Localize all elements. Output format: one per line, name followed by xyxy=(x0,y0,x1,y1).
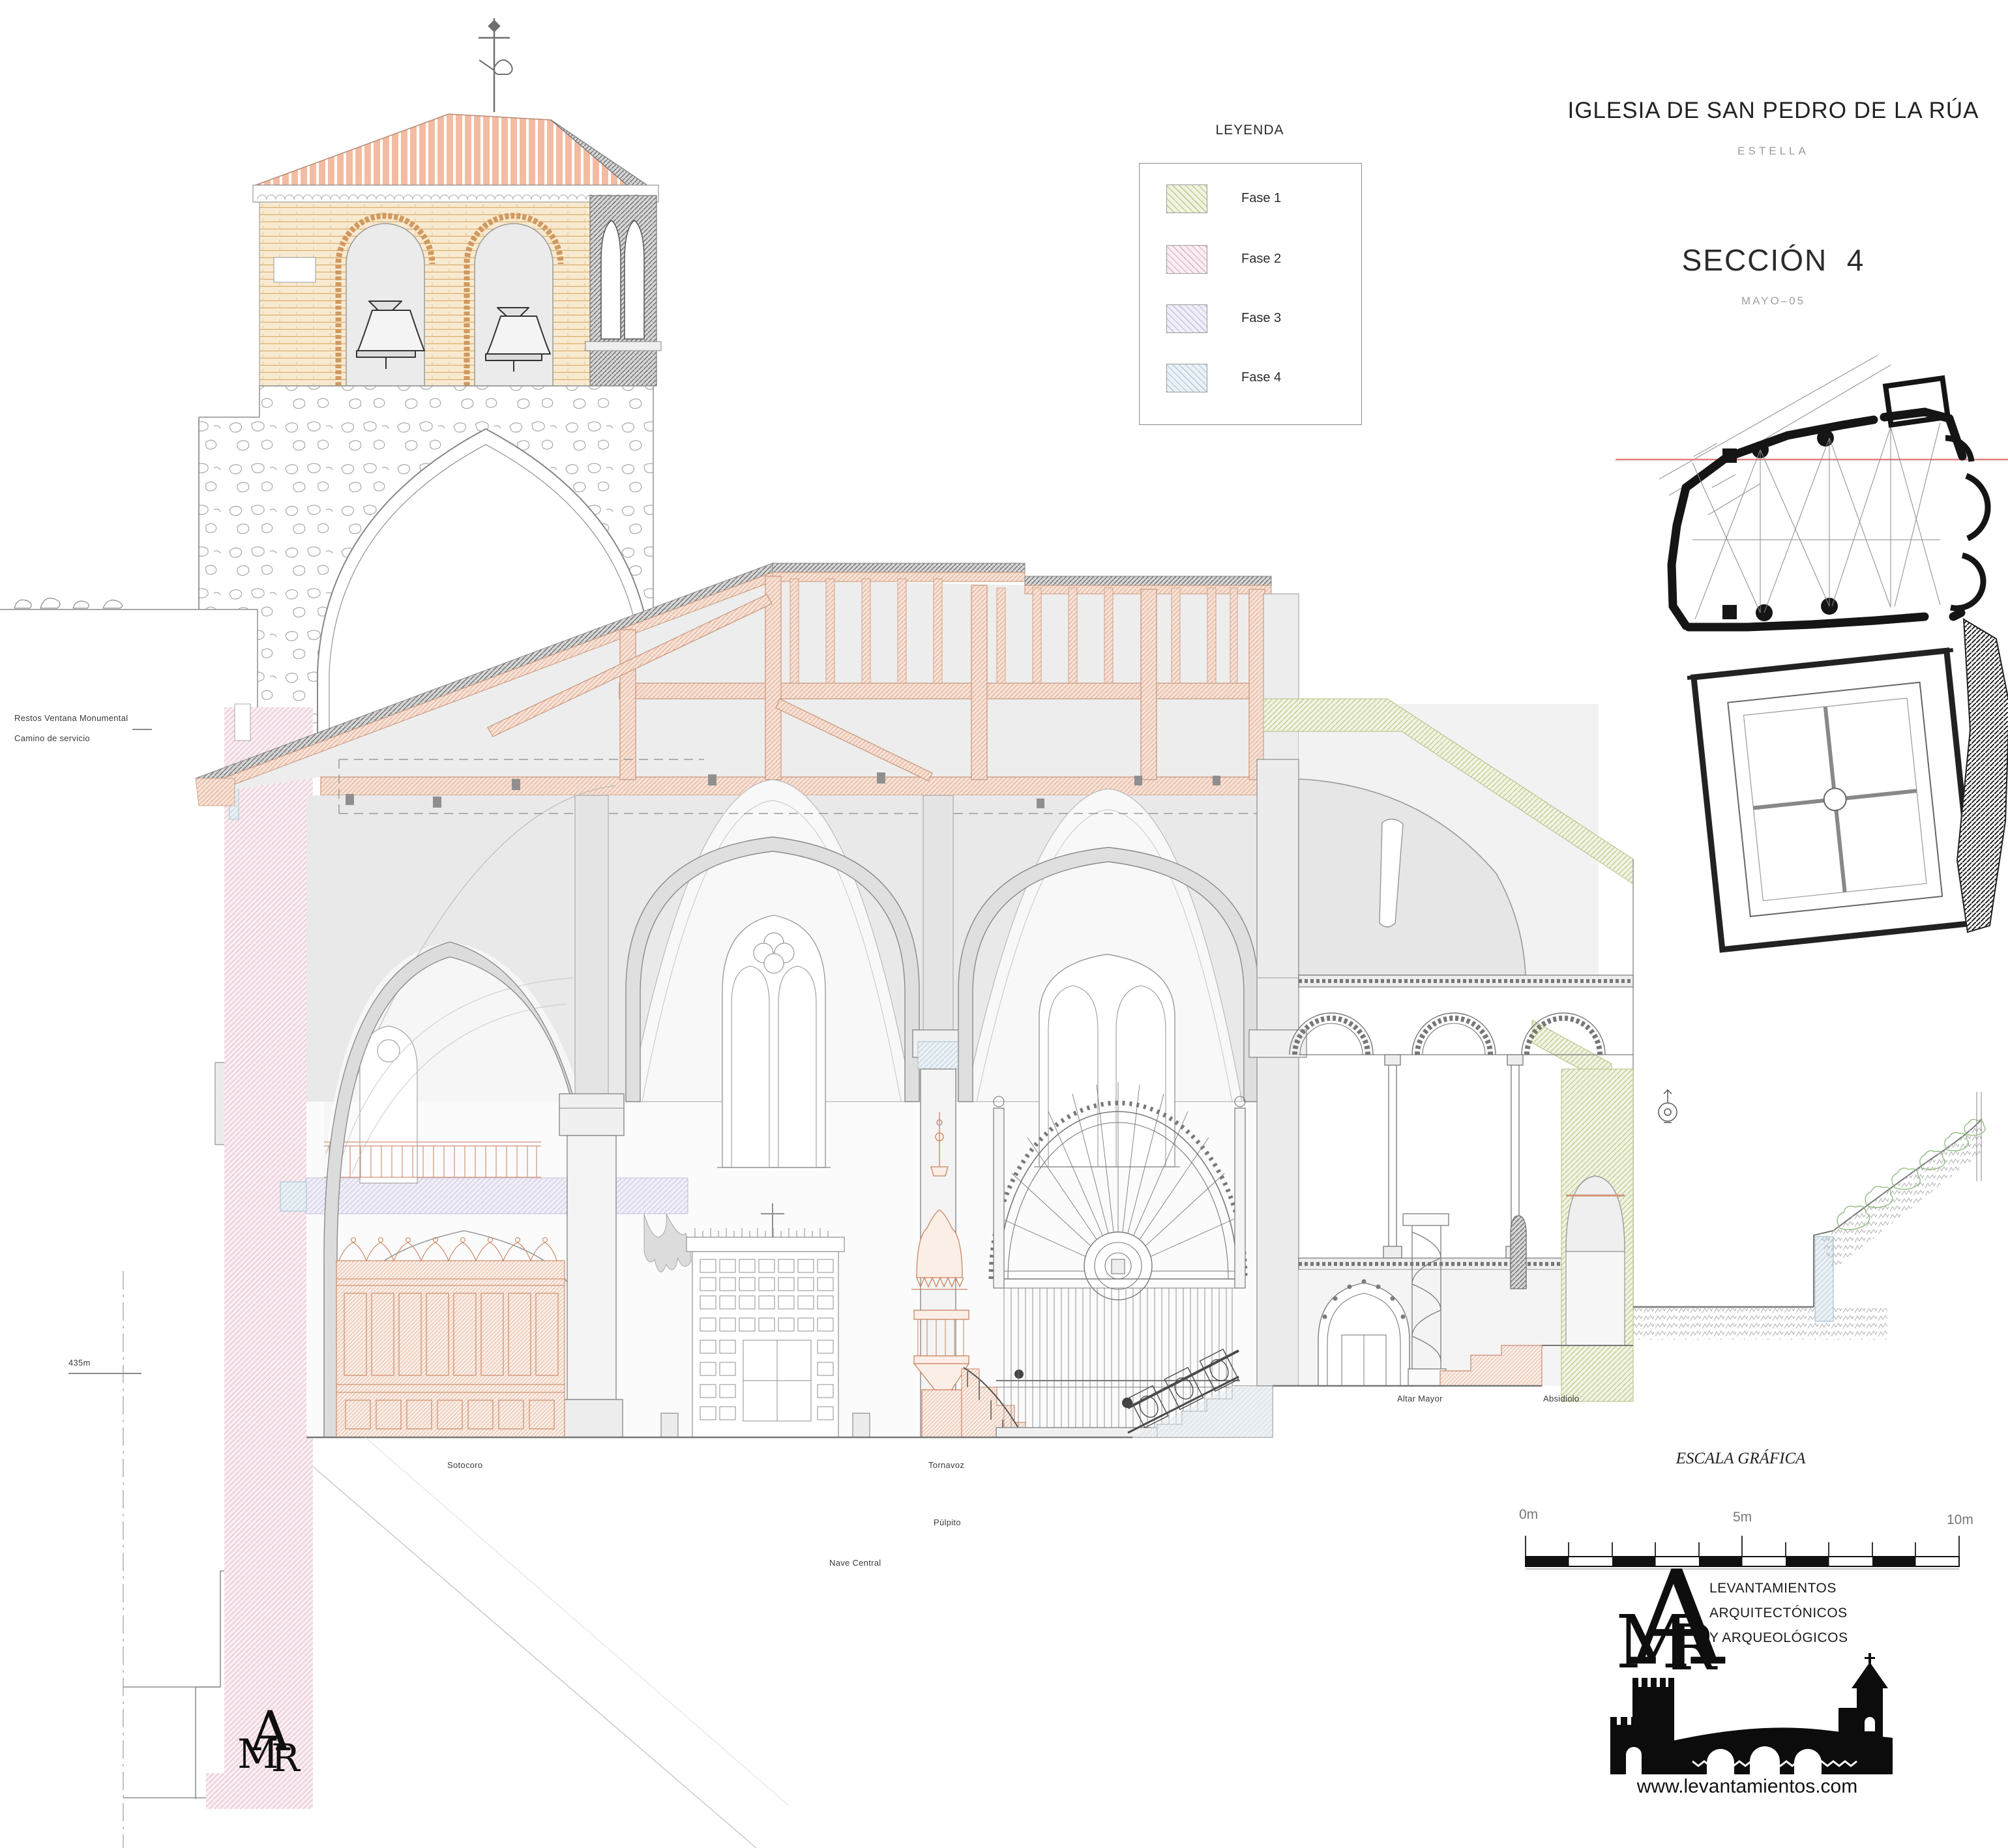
east-gable xyxy=(1263,594,1299,780)
hill-under-nave xyxy=(313,1467,756,1848)
drawing-subtitle: ESTELLA xyxy=(1565,145,1982,158)
plan-terrain-hatch xyxy=(1957,619,2008,932)
hill-slope xyxy=(1833,1119,1982,1231)
label-datum-435m: 435m xyxy=(68,1358,91,1368)
drawing-title: IGLESIA DE SAN PEDRO DE LA RÚA xyxy=(1565,98,1982,124)
label-pulpito: Púlpito xyxy=(934,1518,961,1527)
section-title: SECCIÓN 4 xyxy=(1565,242,1982,278)
logo-line2: ARQUITECTÓNICOS xyxy=(1709,1601,1848,1626)
belfry-dark-pier xyxy=(585,196,661,386)
tower-cross-finial-icon xyxy=(479,18,512,112)
label-sotocoro: Sotocoro xyxy=(447,1460,482,1470)
legend-swatch-fase4 xyxy=(1166,364,1207,392)
legend-swatch-fase3 xyxy=(1166,304,1207,333)
legend-swatch-fase1 xyxy=(1166,184,1207,213)
plan-streets xyxy=(1659,355,1891,515)
fase4-coro-bit xyxy=(280,1182,306,1211)
absidiolo xyxy=(1566,1176,1625,1345)
legend-label-fase2: Fase 2 xyxy=(1241,252,1281,267)
legend-label-fase4: Fase 4 xyxy=(1241,370,1281,385)
scale-bar xyxy=(1526,1536,1959,1569)
legend-title: LEYENDA xyxy=(1139,123,1361,138)
section-date: MAYO–05 xyxy=(1565,295,1982,308)
hill-under-nave-2 xyxy=(365,1437,789,1806)
scale-10m: 10m xyxy=(1947,1512,1973,1528)
watermark-monogram-r: R xyxy=(271,1739,300,1777)
logo-url: www.levantamientos.com xyxy=(1604,1776,1891,1798)
logo-line1: LEVANTAMIENTOS xyxy=(1709,1576,1837,1601)
legend-swatch-fase2 xyxy=(1166,245,1207,274)
cabinet-cross xyxy=(661,1203,870,1437)
label-restos-ventana: Restos Ventana Monumental xyxy=(14,713,128,723)
scale-title: ESCALA GRÁFICA xyxy=(1610,1450,1871,1468)
scale-5m: 5m xyxy=(1733,1510,1752,1525)
label-absidiolo: Absidiolo xyxy=(1543,1394,1579,1403)
label-altar-mayor: Altar Mayor xyxy=(1397,1394,1443,1403)
legend-box: Fase 1 Fase 2 Fase 3 Fase 4 xyxy=(1139,163,1362,425)
north-arrow-icon xyxy=(1659,1090,1677,1122)
legend-label-fase1: Fase 1 xyxy=(1241,191,1281,206)
label-camino-servicio: Camino de servicio xyxy=(14,733,90,743)
plan-cloister xyxy=(1687,650,1982,950)
apse-pier xyxy=(1257,759,1299,1386)
plan-church xyxy=(1672,378,1988,627)
restos-ventana-slot xyxy=(235,704,250,741)
apse xyxy=(1249,594,1633,1401)
apse-niche-window xyxy=(1511,1216,1526,1289)
drawing-sheet: { "title_block": { "title": "IGLESIA DE … xyxy=(0,0,2008,1848)
upper-street-ground xyxy=(0,598,199,609)
window-quatrefoil xyxy=(717,915,831,1167)
tower-roof-tiles xyxy=(256,114,627,185)
site-plan xyxy=(1616,355,2008,1122)
annotation-lines xyxy=(68,729,152,1373)
scale-0m: 0m xyxy=(1519,1507,1538,1523)
label-nave-central: Nave Central xyxy=(829,1558,881,1568)
window-twin-lancet xyxy=(1034,954,1180,1167)
eave-tail xyxy=(196,778,235,806)
label-tornavoz: Tornavoz xyxy=(928,1460,964,1470)
fase2-tower-wall xyxy=(224,707,313,1773)
plan-apses xyxy=(1945,438,1988,608)
legend-label-fase3: Fase 3 xyxy=(1241,311,1281,326)
organ-case xyxy=(336,1238,565,1438)
logo-line3: Y ARQUEOLÓGICOS xyxy=(1709,1626,1848,1650)
